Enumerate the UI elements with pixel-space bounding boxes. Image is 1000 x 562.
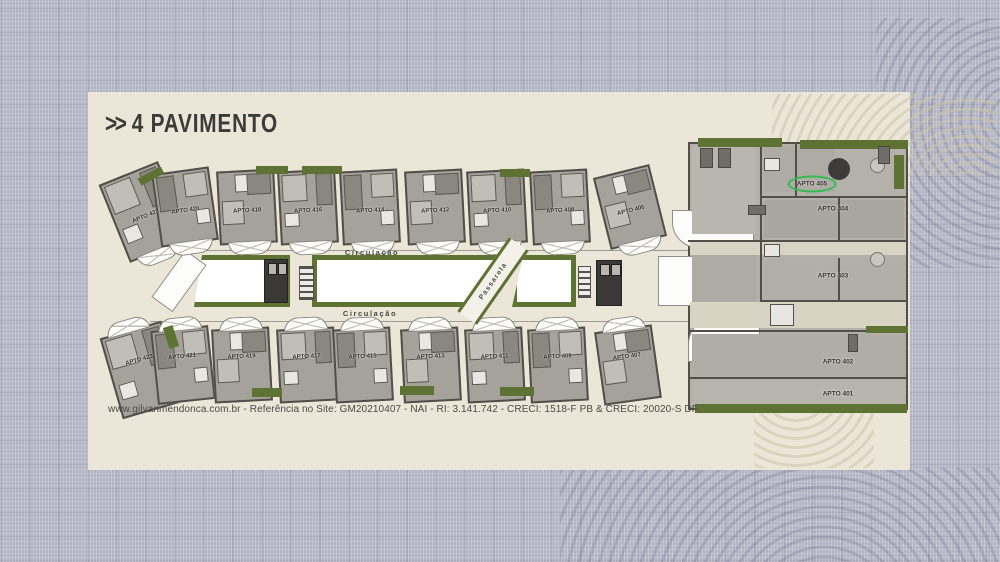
unit-label-apto-403: APTO 403 — [818, 273, 849, 280]
unit-label: APTO 413 — [403, 352, 457, 361]
room — [531, 332, 551, 368]
table-icon — [870, 252, 885, 267]
room — [183, 171, 209, 198]
grass-patch — [252, 388, 282, 397]
balcony — [408, 316, 453, 332]
room — [217, 358, 240, 383]
bed-icon — [878, 146, 890, 164]
room — [281, 174, 307, 202]
room — [247, 173, 272, 195]
room — [234, 174, 248, 193]
room — [613, 332, 628, 352]
elevator-core — [596, 260, 622, 306]
unit-apto-414: APTO 414 — [339, 169, 401, 246]
stair-shaft — [764, 158, 780, 171]
unit-apto-412: APTO 412 — [404, 169, 466, 246]
table-icon — [828, 158, 850, 180]
wall-line — [838, 196, 840, 240]
unit-label: APTO 410 — [470, 207, 524, 216]
room — [406, 358, 429, 383]
room — [373, 367, 388, 383]
room — [343, 174, 363, 210]
chevrons-icon: >> — [105, 108, 125, 139]
hallway — [690, 302, 906, 328]
stairs — [578, 266, 591, 298]
elevator-cab-icon — [268, 263, 277, 275]
balcony — [284, 316, 329, 332]
grass-patch — [302, 166, 342, 174]
unit-apto-408: APTO 408 — [529, 169, 591, 246]
room — [692, 380, 906, 406]
grass-patch — [866, 326, 908, 333]
room — [504, 173, 522, 206]
wall-line — [688, 377, 908, 379]
room — [104, 177, 141, 216]
floorplan-poster: >> 4 PAVIMENTO Circulação Circulação Pas… — [0, 0, 1000, 562]
unit-label-apto-404: APTO 404 — [818, 206, 849, 213]
unit-apto-415: APTO 415 — [332, 327, 394, 404]
unit-label: APTO 419 — [214, 352, 268, 361]
stair-shaft — [770, 304, 794, 326]
wall-line — [688, 240, 908, 242]
room — [533, 174, 553, 210]
unit-apto-421: APTO 421 — [150, 325, 215, 405]
bed-icon — [848, 334, 858, 352]
bed-icon — [700, 148, 713, 168]
grass-patch — [800, 140, 908, 149]
room — [431, 331, 456, 353]
room — [193, 366, 209, 383]
grass-patch — [500, 387, 534, 396]
grass-patch — [500, 169, 530, 177]
unit-label: APTO 416 — [281, 207, 335, 216]
room — [625, 329, 651, 353]
unit-apto-410: APTO 410 — [466, 169, 528, 246]
unit-apto-416: APTO 416 — [277, 169, 339, 246]
balcony — [535, 316, 580, 332]
bed-icon — [748, 205, 766, 215]
room — [422, 174, 436, 193]
room — [336, 332, 356, 368]
room — [229, 332, 243, 351]
elevator-core — [264, 259, 288, 303]
room — [283, 370, 299, 385]
room — [435, 173, 460, 195]
room — [568, 367, 583, 383]
room — [371, 173, 395, 198]
grass-patch — [894, 155, 904, 189]
room — [118, 381, 139, 401]
corridor-label-bottom: Circulação — [320, 309, 420, 318]
grass-patch — [400, 386, 434, 395]
unit-label-apto-401: APTO 401 — [823, 391, 854, 398]
unit-label-apto-402: APTO 402 — [823, 359, 854, 366]
wall-line — [760, 144, 762, 302]
grass-patch — [698, 138, 782, 147]
stairs — [299, 266, 314, 300]
unit-label-apto-405: APTO 405 — [788, 176, 837, 193]
stair-shaft — [764, 244, 780, 257]
room — [470, 174, 496, 202]
unit-apto-418: APTO 418 — [216, 169, 278, 246]
page-title: >> 4 PAVIMENTO — [105, 108, 278, 139]
bed-icon — [718, 148, 731, 168]
unit-apto-407: APTO 407 — [594, 324, 662, 405]
grass-patch — [256, 166, 288, 174]
wall-line — [760, 196, 908, 198]
unit-apto-409: APTO 409 — [527, 327, 589, 404]
room — [561, 173, 585, 198]
corridor-label-top: Circulação — [322, 248, 422, 257]
fabric-swirl-decoration — [560, 468, 1000, 562]
floor-title-text: 4 PAVIMENTO — [132, 108, 278, 139]
elevator-cab-icon — [600, 264, 610, 276]
room — [156, 175, 179, 212]
elevator-cab-icon — [611, 264, 621, 276]
disclaimer-text: www.gilvanmendonca.com.br - Referência n… — [108, 404, 698, 415]
room — [418, 332, 432, 351]
room — [315, 173, 333, 206]
unit-apto-417: APTO 417 — [276, 327, 338, 404]
grass-patch — [695, 404, 907, 413]
room — [242, 331, 267, 353]
balcony — [340, 316, 385, 332]
room — [692, 334, 906, 376]
wall-line — [760, 300, 908, 302]
balcony — [219, 316, 264, 332]
elevator-cab-icon — [278, 263, 287, 275]
unit-apto-420: APTO 420 — [151, 166, 219, 247]
room — [471, 370, 487, 385]
